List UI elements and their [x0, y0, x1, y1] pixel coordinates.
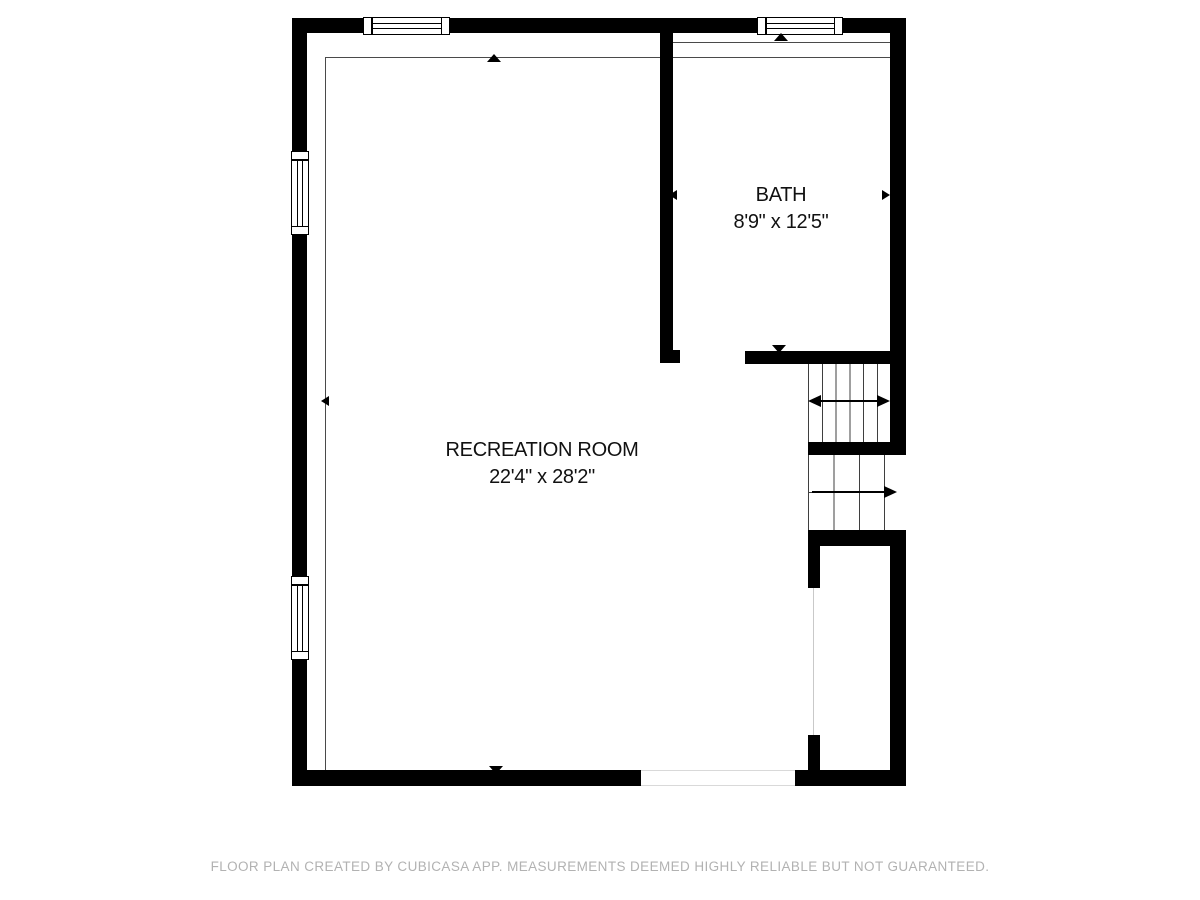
window-mullion [834, 18, 836, 34]
entry-marker-up-bath-icon [774, 33, 788, 41]
bath-top-line-outer [673, 42, 890, 43]
bath-label: BATH 8'9" x 12'5" [681, 182, 881, 236]
arrowhead-left-icon [808, 395, 821, 407]
wall-stair-lower [808, 530, 906, 546]
bath-room-dimensions: 8'9" x 12'5" [681, 209, 881, 236]
window-glass [297, 159, 303, 227]
wall-right-upper [890, 18, 906, 455]
arrowhead-right-icon [884, 486, 897, 498]
wall-bottom-right [795, 770, 906, 786]
wall-right-lower [890, 530, 906, 786]
entry-marker-left-recreation-icon [321, 396, 329, 406]
arrow-shaft [812, 491, 887, 493]
bottom-opening-bottom-line [641, 785, 795, 786]
stairs-direction-arrow-upper [808, 395, 890, 407]
window-left-lower [291, 576, 309, 660]
wall-left [292, 18, 307, 786]
window-glass [765, 23, 835, 29]
wall-closet-lower [808, 735, 820, 772]
entry-marker-left-bath-icon [669, 190, 677, 200]
window-glass [371, 23, 442, 29]
bath-top-line-inner [673, 57, 890, 58]
bottom-opening-top-line [641, 770, 795, 771]
window-mullion [441, 18, 443, 34]
recreation-room-name: RECREATION ROOM [392, 437, 692, 464]
stairs-direction-arrow-lower [812, 486, 897, 498]
entry-marker-down-bath-wall-icon [772, 345, 786, 353]
wall-closet-upper [808, 546, 820, 588]
floor-plan: BATH 8'9" x 12'5" RECREATION ROOM 22'4" … [0, 0, 1200, 900]
closet-opening-line [813, 588, 814, 735]
window-mullion [765, 18, 767, 34]
bath-room-name: BATH [681, 182, 881, 209]
recreation-room-label: RECREATION ROOM 22'4" x 28'2" [392, 437, 692, 491]
window-left-upper [291, 151, 309, 235]
window-top-right [757, 17, 843, 35]
arrowhead-right-icon [877, 395, 890, 407]
recreation-room-dimensions: 22'4" x 28'2" [392, 464, 692, 491]
window-mullion [292, 226, 308, 228]
wall-bath-divider-foot [660, 350, 680, 363]
footer-disclaimer: FLOOR PLAN CREATED BY CUBICASA APP. MEAS… [0, 859, 1200, 874]
window-mullion [371, 18, 373, 34]
window-mullion [292, 159, 308, 161]
wall-stair-mid [808, 442, 906, 455]
arrow-shaft [818, 400, 880, 402]
wall-bath-bottom [745, 351, 890, 364]
entry-marker-down-recreation-icon [489, 766, 503, 774]
wall-bottom-left [292, 770, 641, 786]
window-mullion [292, 584, 308, 586]
entry-marker-right-bath-icon [882, 190, 890, 200]
window-glass [297, 584, 303, 652]
window-mullion [292, 651, 308, 653]
recreation-room-left-line [325, 57, 326, 770]
entry-marker-up-recreation-icon [487, 54, 501, 62]
window-top-left [363, 17, 450, 35]
